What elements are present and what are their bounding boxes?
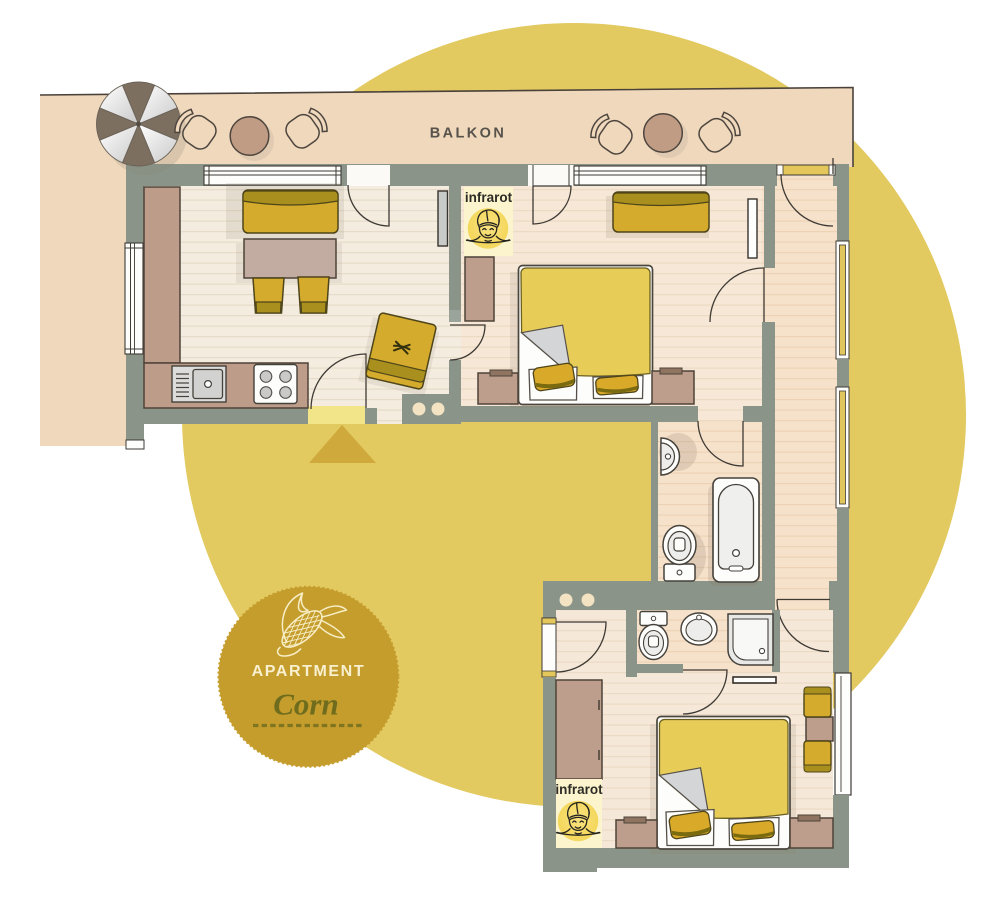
- svg-text:infrarot: infrarot: [465, 190, 513, 205]
- svg-text:APARTMENT: APARTMENT: [252, 663, 366, 680]
- svg-text:BALKON: BALKON: [430, 126, 506, 142]
- svg-text:Corn: Corn: [273, 687, 338, 722]
- svg-text:infrarot: infrarot: [555, 782, 603, 797]
